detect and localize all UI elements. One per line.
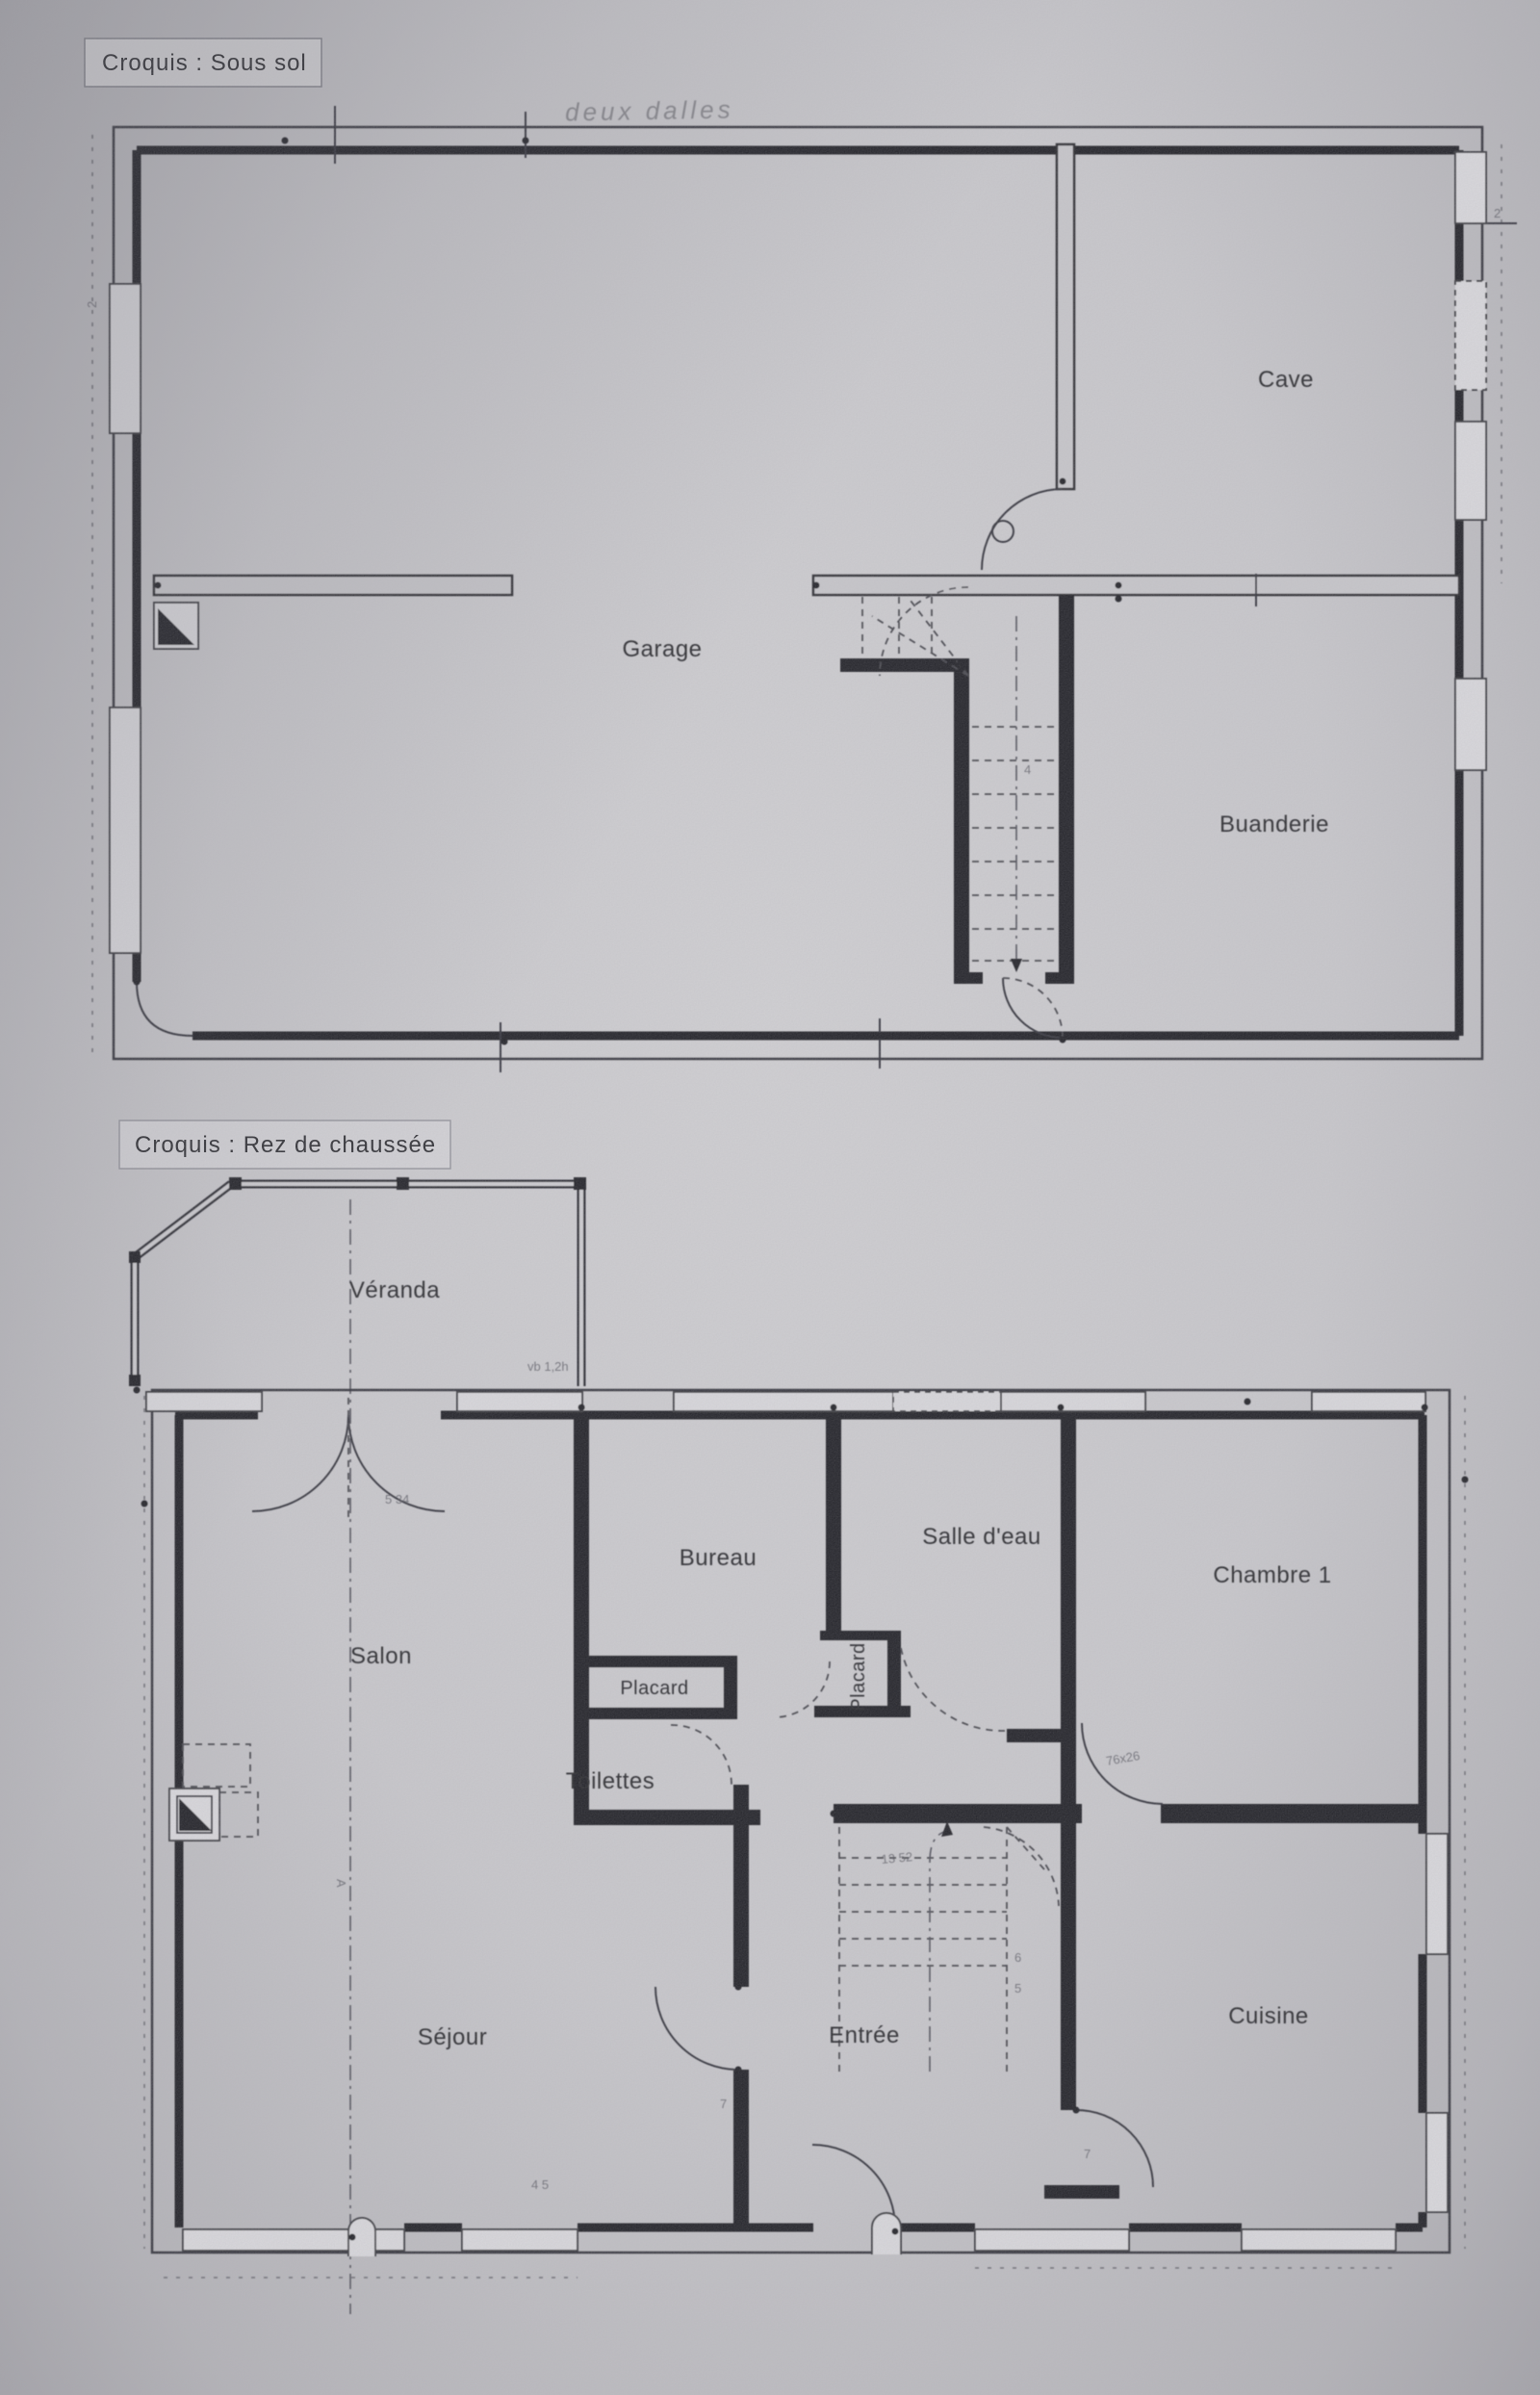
floorplan-drawing: Garage Cave Buanderie deux dalles 2 2 4 bbox=[0, 0, 1540, 2395]
scanned-floorplan-page: Garage Cave Buanderie deux dalles 2 2 4 bbox=[0, 0, 1540, 2395]
grain-overlay bbox=[0, 0, 1540, 2395]
